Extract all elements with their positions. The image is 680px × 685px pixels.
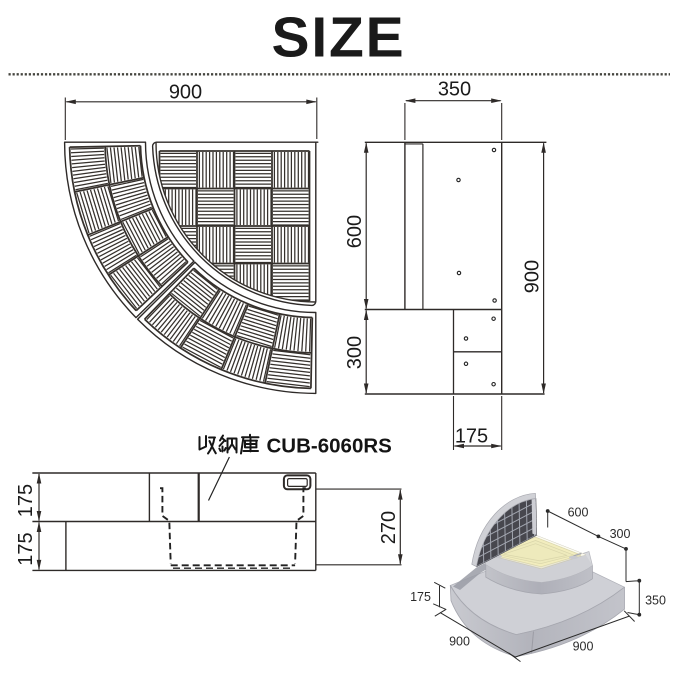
svg-text:900: 900 <box>169 81 202 103</box>
svg-text:270: 270 <box>378 511 400 544</box>
svg-text:175: 175 <box>455 426 488 448</box>
svg-text:900: 900 <box>573 640 594 654</box>
svg-text:350: 350 <box>438 79 471 101</box>
svg-text:600: 600 <box>568 506 589 520</box>
svg-text:900: 900 <box>522 260 544 293</box>
svg-text:CUB-6060RS: CUB-6060RS <box>267 435 392 458</box>
svg-text:900: 900 <box>449 635 470 649</box>
svg-text:SIZE: SIZE <box>272 6 406 70</box>
svg-text:175: 175 <box>410 590 431 604</box>
svg-text:350: 350 <box>645 593 666 607</box>
svg-text:600: 600 <box>344 215 366 248</box>
svg-text:300: 300 <box>344 336 366 369</box>
svg-text:175: 175 <box>15 532 37 565</box>
svg-text:175: 175 <box>15 484 37 517</box>
svg-text:300: 300 <box>610 527 631 541</box>
